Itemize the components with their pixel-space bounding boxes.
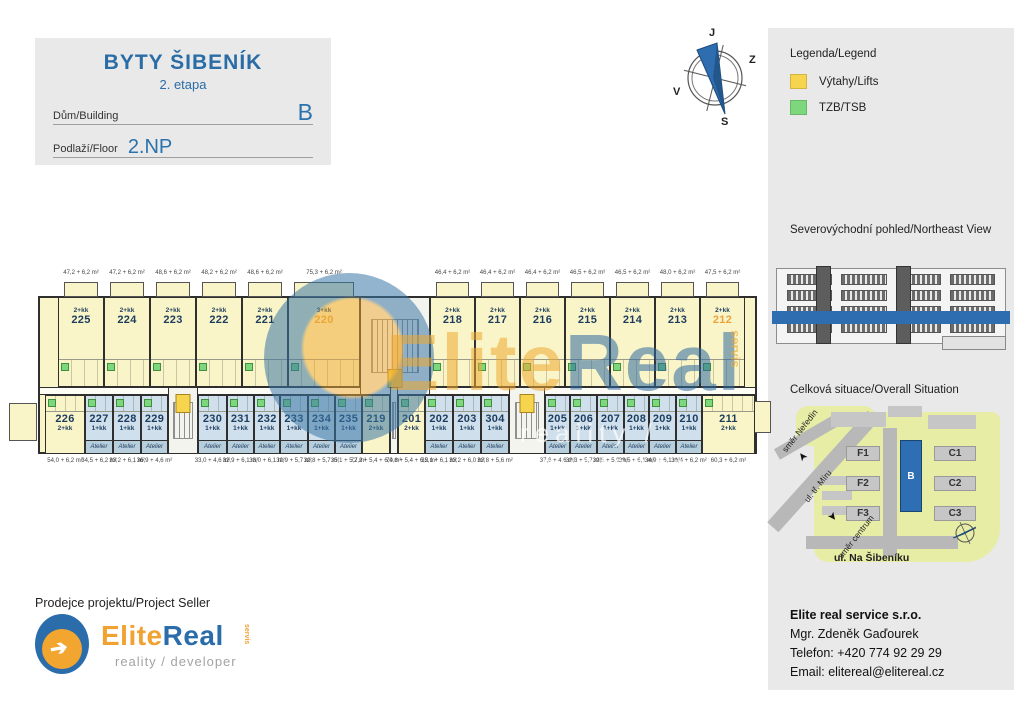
tzb-block: [573, 399, 581, 407]
unit-number: 203: [454, 413, 480, 425]
unit-fixtures: [86, 396, 112, 412]
tzb-block: [433, 363, 441, 371]
atelier-band: Atelier: [454, 440, 480, 453]
tzb-block: [338, 399, 346, 407]
tzb-block: [283, 399, 291, 407]
unit-area-label: 46,4 + 6,2 m²: [435, 270, 471, 276]
balcony: [661, 282, 694, 297]
legend-label: TZB/TSB: [819, 102, 866, 114]
unit-type: 2+kk: [46, 425, 84, 432]
unit-area-label: 60,3 + 6,2 m²: [711, 458, 747, 464]
tzb-block: [658, 363, 666, 371]
contact-block: Elite real service s.r.o. Mgr. Zdeněk Ga…: [790, 606, 944, 682]
unit-216: 2+kk216: [520, 297, 565, 387]
tzb-block: [705, 399, 713, 407]
unit-fixtures: [336, 396, 361, 412]
unit-type: 2+kk: [151, 307, 195, 314]
lift-color-swatch: [790, 74, 807, 89]
page-title: BYTY ŠIBENÍK: [35, 51, 331, 75]
unit-fixtures: [625, 396, 648, 412]
unit-type: 2+kk: [656, 307, 699, 314]
unit-206: 2061+kkAtelier: [570, 395, 597, 454]
atelier-band: Atelier: [598, 440, 623, 453]
unit-number: 227: [86, 413, 112, 425]
seller-heading: Prodejce projektu/Project Seller: [35, 596, 210, 610]
elevation-annex: [942, 336, 1006, 350]
unit-fixtures: [363, 396, 389, 412]
balcony: [110, 282, 144, 297]
unit-304: 3041+kkAtelier: [481, 395, 509, 454]
floor-label: Podlaží/Floor: [53, 143, 118, 157]
compass-icon: [673, 30, 759, 130]
unit-235: 2351+kkAtelier: [335, 395, 362, 454]
compass-label-s: S: [721, 116, 728, 128]
atelier-band: Atelier: [309, 440, 334, 453]
unit-type: 3+kk: [289, 307, 359, 314]
unit-number: 211: [703, 413, 754, 425]
unit-fixtures: [289, 359, 359, 386]
unit-type: 1+kk: [625, 425, 648, 432]
unit-label: 2051+kk: [546, 413, 569, 432]
right-panel: Legenda/Legend Výtahy/Lifts TZB/TSB Seve…: [768, 28, 1014, 690]
unit-label: 2192+kk: [363, 413, 389, 432]
unit-fixtures: [598, 396, 623, 412]
unit-217: 2+kk217: [475, 297, 520, 387]
logo-servis: servis: [243, 624, 250, 644]
unit-number: 234: [309, 413, 334, 425]
tzb-block: [201, 399, 209, 407]
unit-fixtures: [454, 396, 480, 412]
stage-subtitle: 2. etapa: [35, 77, 331, 92]
map-building-c2: C2: [934, 476, 976, 491]
unit-fixtures: [228, 396, 253, 412]
unit-number: 232: [255, 413, 279, 425]
unit-fixtures: [650, 396, 675, 412]
unit-207: 2071+kkAtelier: [597, 395, 624, 454]
tzb-block: [627, 399, 635, 407]
unit-label: 2091+kk: [650, 413, 675, 432]
unit-area-label: 47,5 + 6,2 m²: [705, 270, 741, 276]
tzb-block: [523, 363, 531, 371]
tzb-block: [484, 399, 492, 407]
tzb-block: [613, 363, 621, 371]
unit-215: 2+kk215: [565, 297, 610, 387]
unit-label: 2+kk215: [566, 307, 609, 326]
unit-fixtures: [546, 396, 569, 412]
unit-type: 1+kk: [571, 425, 596, 432]
unit-fixtures: [566, 359, 609, 386]
map-building: [928, 415, 976, 429]
logo-tagline: reality / developer: [115, 654, 237, 669]
contact-person: Mgr. Zdeněk Gaďourek: [790, 625, 944, 644]
unit-number: 216: [521, 314, 564, 326]
atelier-band: Atelier: [482, 440, 508, 453]
floor-value: 2.NP: [128, 137, 303, 157]
unit-type: 1+kk: [281, 425, 307, 432]
unit-fixtures: [656, 359, 699, 386]
unit-label: 2281+kk: [114, 413, 140, 432]
unit-fixtures: [476, 359, 519, 386]
unit-201: 2012+kk: [398, 395, 425, 454]
balcony: [64, 282, 98, 297]
unit-type: 2+kk: [701, 307, 744, 314]
atelier-band: Atelier: [142, 440, 167, 453]
unit-209: 2091+kkAtelier: [649, 395, 676, 454]
tzb-block: [456, 399, 464, 407]
atelier-band: Atelier: [546, 440, 569, 453]
balcony: [294, 282, 354, 297]
unit-label: 2081+kk: [625, 413, 648, 432]
logo-real: Real: [163, 620, 224, 651]
unit-type: 2+kk: [59, 307, 103, 314]
unit-label: 2351+kk: [336, 413, 361, 432]
balcony: [9, 403, 37, 441]
unit-number: 201: [399, 413, 424, 425]
unit-fixtures: [703, 396, 754, 412]
mini-compass-icon: [950, 518, 980, 548]
unit-label: 2061+kk: [571, 413, 596, 432]
map-building: [888, 406, 922, 417]
building-row: Dům/Building B: [53, 98, 313, 125]
unit-fixtures: [197, 359, 241, 386]
map-building-f1: F1: [846, 446, 880, 461]
unit-area-label: 54,0 + 6,2 m²: [47, 458, 83, 464]
unit-fixtures: [114, 396, 140, 412]
stair-core: [360, 297, 430, 395]
map-building-c1: C1: [934, 446, 976, 461]
unit-number: 205: [546, 413, 569, 425]
unit-fixtures: [431, 359, 474, 386]
logo-elite: Elite: [101, 620, 163, 651]
unit-label: 2112+kk: [703, 413, 754, 432]
unit-type: 2+kk: [566, 307, 609, 314]
unit-type: 2+kk: [431, 307, 474, 314]
atelier-band: Atelier: [571, 440, 596, 453]
unit-type: 1+kk: [142, 425, 167, 432]
unit-223: 2+kk223: [150, 297, 196, 387]
tzb-block: [478, 363, 486, 371]
unit-225: 2+kk225: [58, 297, 104, 387]
unit-number: 214: [611, 314, 654, 326]
unit-229: 2291+kkAtelier: [141, 395, 168, 454]
unit-type: 2+kk: [363, 425, 389, 432]
tzb-block: [48, 399, 56, 407]
unit-type: 1+kk: [677, 425, 701, 432]
compass-rose: J Z V S: [673, 30, 759, 130]
stair-core: [168, 387, 198, 454]
logo-wordmark: EliteReal: [101, 620, 224, 652]
unit-label: 2+kk218: [431, 307, 474, 326]
unit-234: 2341+kkAtelier: [308, 395, 335, 454]
unit-number: 233: [281, 413, 307, 425]
unit-area-label: 46,5 + 6,2 m²: [570, 270, 606, 276]
unit-number: 223: [151, 314, 195, 326]
balcony: [571, 282, 604, 297]
elevation-stair-core: [816, 266, 831, 344]
unit-type: 1+kk: [114, 425, 140, 432]
unit-233: 2331+kkAtelier: [280, 395, 308, 454]
unit-number: 207: [598, 413, 623, 425]
unit-label: 2012+kk: [399, 413, 424, 432]
unit-220: 3+kk220: [288, 297, 360, 387]
unit-212: 2+kk212: [700, 297, 745, 387]
unit-fixtures: [701, 359, 744, 386]
tzb-block: [652, 399, 660, 407]
unit-label: 2+kk224: [105, 307, 149, 326]
situation-title: Celková situace/Overall Situation: [790, 384, 959, 396]
current-floor-highlight: [772, 311, 1010, 324]
unit-type: 1+kk: [255, 425, 279, 432]
unit-number: 226: [46, 413, 84, 425]
tzb-block: [153, 363, 161, 371]
unit-number: 228: [114, 413, 140, 425]
unit-type: 1+kk: [199, 425, 226, 432]
unit-fixtures: [571, 396, 596, 412]
tzb-block: [401, 399, 409, 407]
unit-number: 208: [625, 413, 648, 425]
unit-number: 202: [426, 413, 452, 425]
unit-label: 2+kk213: [656, 307, 699, 326]
unit-219: 2192+kk: [362, 395, 390, 454]
unit-number: 235: [336, 413, 361, 425]
staircase: [392, 402, 396, 438]
balcony: [436, 282, 469, 297]
unit-type: 1+kk: [426, 425, 452, 432]
unit-fixtures: [59, 359, 103, 386]
unit-label: 2101+kk: [677, 413, 701, 432]
unit-type: 2+kk: [703, 425, 754, 432]
unit-number: 220: [289, 314, 359, 326]
atelier-band: Atelier: [86, 440, 112, 453]
unit-226: 2262+kk: [45, 395, 85, 454]
unit-fixtures: [255, 396, 279, 412]
unit-fixtures: [105, 359, 149, 386]
unit-fixtures: [426, 396, 452, 412]
unit-type: 1+kk: [650, 425, 675, 432]
unit-number: 215: [566, 314, 609, 326]
unit-type: 2+kk: [197, 307, 241, 314]
balcony: [481, 282, 514, 297]
tzb-block: [144, 399, 152, 407]
logo-arrow-icon: ➔: [48, 635, 70, 663]
balcony: [706, 282, 739, 297]
northeast-view-title: Severovýchodní pohled/Northeast View: [790, 224, 991, 236]
tzb-block: [365, 399, 373, 407]
unit-type: 1+kk: [309, 425, 334, 432]
unit-number: 224: [105, 314, 149, 326]
tzb-block: [245, 363, 253, 371]
balcony: [202, 282, 236, 297]
unit-label: 2+kk214: [611, 307, 654, 326]
unit-area-label: 48,6 + 6,2 m²: [155, 270, 191, 276]
elitereal-logo: ➔ EliteReal servis reality / developer: [35, 614, 295, 678]
atelier-band: Atelier: [199, 440, 226, 453]
unit-number: 206: [571, 413, 596, 425]
unit-type: 1+kk: [336, 425, 361, 432]
unit-number: 304: [482, 413, 508, 425]
header-box: BYTY ŠIBENÍK 2. etapa Dům/Building B Pod…: [35, 38, 331, 165]
unit-203: 2031+kkAtelier: [453, 395, 481, 454]
northeast-elevation: [776, 268, 1006, 344]
balcony: [526, 282, 559, 297]
tzb-block: [568, 363, 576, 371]
atelier-band: Atelier: [650, 440, 675, 453]
atelier-band: Atelier: [114, 440, 140, 453]
stair-core: [509, 387, 545, 454]
tzb-block: [679, 399, 687, 407]
tzb-block: [199, 363, 207, 371]
lift-block: [520, 394, 535, 413]
unit-type: 2+kk: [105, 307, 149, 314]
unit-label: 2+kk216: [521, 307, 564, 326]
atelier-band: Atelier: [677, 440, 701, 453]
unit-label: 2021+kk: [426, 413, 452, 432]
tzb-block: [61, 363, 69, 371]
tzb-block: [703, 363, 711, 371]
tzb-block: [428, 399, 436, 407]
unit-205: 2051+kkAtelier: [545, 395, 570, 454]
building-value: B: [298, 101, 313, 124]
stair-core: [390, 387, 398, 454]
atelier-band: Atelier: [426, 440, 452, 453]
unit-fixtures: [677, 396, 701, 412]
tzb-color-swatch: [790, 100, 807, 115]
unit-type: 1+kk: [598, 425, 623, 432]
legend-label: Výtahy/Lifts: [819, 76, 878, 88]
compass-label-v: V: [673, 86, 680, 98]
unit-label: 2331+kk: [281, 413, 307, 432]
unit-type: 1+kk: [228, 425, 253, 432]
unit-213: 2+kk213: [655, 297, 700, 387]
unit-type: 1+kk: [482, 425, 508, 432]
tzb-block: [291, 363, 299, 371]
building-label: Dům/Building: [53, 110, 118, 124]
unit-label: 2341+kk: [309, 413, 334, 432]
unit-number: 225: [59, 314, 103, 326]
road-na-sibeniku: [806, 536, 958, 549]
unit-label: 3+kk220: [289, 307, 359, 326]
unit-area-label: 48,0 + 6,2 m²: [660, 270, 696, 276]
unit-number: 209: [650, 413, 675, 425]
unit-label: 2+kk223: [151, 307, 195, 326]
unit-type: 1+kk: [86, 425, 112, 432]
unit-fixtures: [243, 359, 287, 386]
unit-number: 213: [656, 314, 699, 326]
tzb-block: [88, 399, 96, 407]
unit-area-label: 47,2 + 6,2 m²: [109, 270, 145, 276]
unit-fixtures: [151, 359, 195, 386]
unit-221: 2+kk221: [242, 297, 288, 387]
balcony: [616, 282, 649, 297]
unit-label: 2+kk221: [243, 307, 287, 326]
unit-214: 2+kk214: [610, 297, 655, 387]
staircase: [371, 319, 419, 373]
unit-fixtures: [482, 396, 508, 412]
unit-231: 2311+kkAtelier: [227, 395, 254, 454]
unit-number: 218: [431, 314, 474, 326]
atelier-band: Atelier: [336, 440, 361, 453]
unit-area-label: 46,4 + 6,2 m²: [525, 270, 561, 276]
unit-label: 2291+kk: [142, 413, 167, 432]
unit-fixtures: [521, 359, 564, 386]
tzb-block: [107, 363, 115, 371]
contact-email: Email: elitereal@elitereal.cz: [790, 663, 944, 682]
lift-block: [388, 369, 403, 388]
unit-227: 2271+kkAtelier: [85, 395, 113, 454]
tzb-block: [257, 399, 265, 407]
unit-label: 2311+kk: [228, 413, 253, 432]
atelier-band: Atelier: [625, 440, 648, 453]
map-building: [831, 412, 886, 427]
unit-224: 2+kk224: [104, 297, 150, 387]
unit-area-label: 75,3 + 6,2 m²: [306, 270, 342, 276]
unit-label: 3041+kk: [482, 413, 508, 432]
balcony: [156, 282, 190, 297]
unit-number: 231: [228, 413, 253, 425]
contact-phone: Telefon: +420 774 92 29 29: [790, 644, 944, 663]
unit-area-label: 46,4 + 6,2 m²: [480, 270, 516, 276]
map-building-b-highlighted: B: [900, 440, 922, 512]
balcony: [248, 282, 282, 297]
compass-label-z: Z: [749, 54, 756, 66]
unit-number: 229: [142, 413, 167, 425]
unit-type: 2+kk: [476, 307, 519, 314]
unit-number: 222: [197, 314, 241, 326]
tzb-block: [230, 399, 238, 407]
situation-map: F1 F2 F3 B C1 C2 C3 ul. Na Šibeníku směr…: [776, 406, 1004, 588]
atelier-band: Atelier: [281, 440, 307, 453]
unit-label: 2301+kk: [199, 413, 226, 432]
unit-label: 2262+kk: [46, 413, 84, 432]
contact-company: Elite real service s.r.o.: [790, 606, 944, 625]
unit-type: 2+kk: [521, 307, 564, 314]
elevation-stair-core: [896, 266, 911, 344]
unit-area-label: 36,9 + 4,6 m²: [137, 458, 173, 464]
unit-number: 221: [243, 314, 287, 326]
atelier-band: Atelier: [228, 440, 253, 453]
unit-fixtures: [142, 396, 167, 412]
unit-area-label: 46,5 + 6,2 m²: [615, 270, 651, 276]
tzb-block: [116, 399, 124, 407]
unit-fixtures: [199, 396, 226, 412]
floor-plan: 2+kk22547,2 + 6,2 m²2+kk22447,2 + 6,2 m²…: [38, 268, 760, 473]
unit-210: 2101+kkAtelier: [676, 395, 702, 454]
unit-218: 2+kk218: [430, 297, 475, 387]
unit-area-label: 47,2 + 6,2 m²: [63, 270, 99, 276]
unit-area-label: 32,8 + 5,6 m²: [477, 458, 513, 464]
lift-block: [176, 394, 191, 413]
unit-222: 2+kk222: [196, 297, 242, 387]
unit-label: 2+kk217: [476, 307, 519, 326]
unit-230: 2301+kkAtelier: [198, 395, 227, 454]
map-building-f2: F2: [846, 476, 880, 491]
unit-232: 2321+kkAtelier: [254, 395, 280, 454]
unit-type: 2+kk: [243, 307, 287, 314]
unit-208: 2081+kkAtelier: [624, 395, 649, 454]
compass-label-j: J: [709, 27, 715, 39]
unit-label: 2+kk212: [701, 307, 744, 326]
unit-number: 212: [701, 314, 744, 326]
floor-row: Podlaží/Floor 2.NP: [53, 131, 313, 158]
unit-type: 1+kk: [454, 425, 480, 432]
unit-label: 2+kk225: [59, 307, 103, 326]
unit-type: 2+kk: [399, 425, 424, 432]
unit-type: 2+kk: [611, 307, 654, 314]
unit-number: 219: [363, 413, 389, 425]
unit-label: 2031+kk: [454, 413, 480, 432]
unit-fixtures: [611, 359, 654, 386]
unit-number: 217: [476, 314, 519, 326]
